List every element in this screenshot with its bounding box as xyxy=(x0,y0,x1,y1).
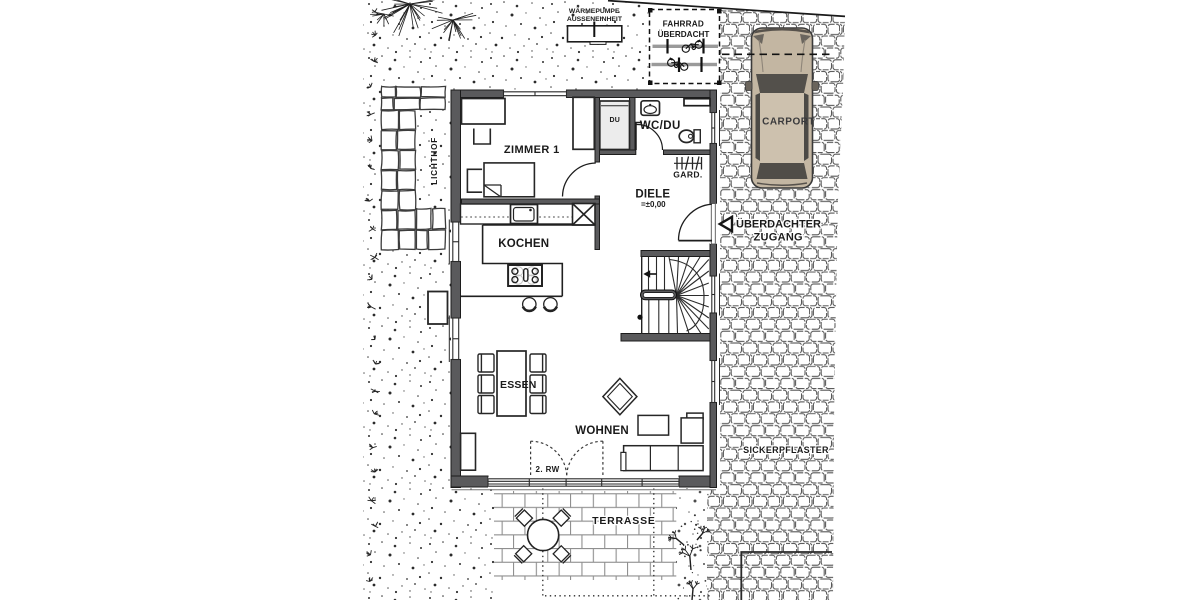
svg-text:ESSEN: ESSEN xyxy=(500,379,537,391)
svg-text:WOHNEN: WOHNEN xyxy=(575,425,629,437)
svg-text:ZUGANG: ZUGANG xyxy=(753,231,802,243)
svg-text:KOCHEN: KOCHEN xyxy=(498,238,549,250)
svg-text:=±0,00: =±0,00 xyxy=(641,200,666,209)
svg-text:TERRASSE: TERRASSE xyxy=(592,515,656,527)
svg-text:WÄRMEPUMPE: WÄRMEPUMPE xyxy=(569,7,620,15)
svg-text:SICKERPFLASTER: SICKERPFLASTER xyxy=(743,445,829,455)
svg-text:AUSSENEINHEIT: AUSSENEINHEIT xyxy=(567,16,623,23)
svg-text:FAHRRAD: FAHRRAD xyxy=(663,20,704,29)
svg-text:ZIMMER 1: ZIMMER 1 xyxy=(504,144,560,156)
svg-text:ÜBERDACHT: ÜBERDACHT xyxy=(658,29,710,39)
svg-text:CARPORT: CARPORT xyxy=(762,117,815,128)
svg-text:ÜBERDACHTER: ÜBERDACHTER xyxy=(736,218,821,231)
svg-text:2. RW: 2. RW xyxy=(536,465,560,474)
svg-text:GARD.: GARD. xyxy=(673,170,702,180)
svg-text:WC/DU: WC/DU xyxy=(640,120,681,132)
svg-text:LICHTHOF: LICHTHOF xyxy=(430,137,439,185)
svg-text:DIELE: DIELE xyxy=(635,189,670,201)
svg-text:DU: DU xyxy=(609,117,620,124)
